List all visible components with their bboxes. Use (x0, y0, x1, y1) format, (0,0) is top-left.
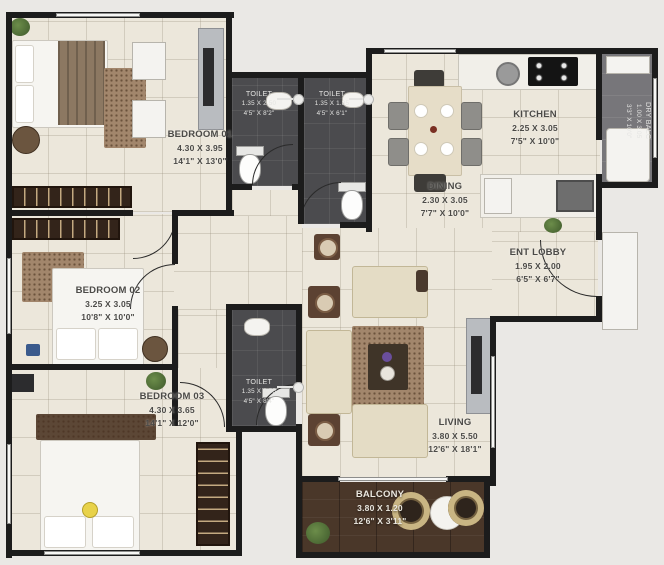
wardrobe (12, 218, 120, 240)
room-name: BALCONY (328, 488, 432, 502)
room-size-m: 2.30 X 3.05 (390, 194, 500, 207)
room-label-bedroom-02: BEDROOM 02 3.25 X 3.05 10'8" X 10'0" (40, 284, 176, 324)
window (44, 551, 140, 555)
flower-vase (382, 352, 392, 362)
wall (446, 476, 490, 482)
side-table (308, 414, 340, 446)
plate (414, 104, 428, 118)
room-size-m: 1.95 X 2.00 (486, 260, 590, 273)
room-size-ft: 14'1" X 13'0" (130, 155, 270, 168)
sofa (306, 330, 352, 414)
pillow (98, 328, 138, 360)
room-label-bedroom-01: BEDROOM 01 4.30 X 3.95 14'1" X 13'0" (130, 128, 270, 168)
sofa-armrest (416, 270, 428, 292)
room-name: BEDROOM 01 (130, 128, 270, 142)
room-size-ft: 3'3" X 10'0" (623, 62, 633, 180)
pillow (92, 516, 134, 548)
bed-lamp (82, 502, 98, 518)
wall (494, 316, 602, 322)
plant (10, 18, 30, 36)
decor-vase (380, 366, 395, 381)
window (384, 49, 456, 53)
wc (341, 190, 363, 220)
wall (172, 210, 234, 216)
wall (6, 210, 133, 216)
wall (172, 216, 178, 264)
dining-chair (388, 138, 409, 166)
room-size-ft: 12'6" X 18'1" (400, 443, 510, 456)
pillow (44, 516, 86, 548)
plate (440, 142, 454, 156)
room-size-ft: 12'6" X 3'11" (328, 515, 432, 528)
plate (440, 104, 454, 118)
side-table (314, 234, 340, 260)
room-name: DRY BALC (643, 62, 654, 180)
wall (296, 304, 302, 390)
tv (203, 48, 214, 106)
window (7, 258, 11, 334)
room-label-kitchen: KITCHEN 2.25 X 3.05 7'5" X 10'0" (470, 108, 600, 148)
room-name: BEDROOM 02 (40, 284, 176, 298)
entrance-landing (602, 232, 638, 330)
room-size-ft: 4'5" X 8'2" (230, 109, 288, 119)
room-label-dining: DINING 2.30 X 3.05 7'7" X 10'0" (390, 180, 500, 220)
cooktop (528, 57, 578, 86)
wardrobe (12, 186, 132, 208)
bedside-stool (26, 344, 40, 356)
washbasin (244, 318, 270, 336)
room-size-m: 1.00 X 3.05 (633, 62, 643, 180)
wardrobe (196, 442, 230, 546)
room-size-ft: 6'5" X 6'7" (486, 273, 590, 286)
wall (484, 480, 490, 558)
rattan-chair (448, 490, 484, 526)
room-name: BEDROOM 03 (104, 390, 240, 404)
room-size-m: 1.35 X 1.85 (304, 99, 360, 109)
room-size-ft: 4'5" X 6'1" (304, 109, 360, 119)
room-name: KITCHEN (470, 108, 600, 122)
room-label-toilet-1: TOILET 1.35 X 2.50 4'5" X 8'2" (230, 88, 288, 119)
wall (296, 476, 340, 482)
wall (6, 364, 178, 370)
wall (236, 430, 242, 556)
room-size-m: 1.35 X 2.50 (230, 99, 288, 109)
tv (471, 336, 482, 394)
pillow (56, 328, 96, 360)
room-size-m: 4.30 X 3.65 (104, 404, 240, 417)
room-label-living: LIVING 3.80 X 5.50 12'6" X 18'1" (400, 416, 510, 456)
centerpiece (430, 126, 437, 133)
room-size-m: 2.25 X 3.05 (470, 122, 600, 135)
bed-throw (58, 41, 105, 125)
decor-bowl (318, 238, 338, 258)
wall (366, 48, 372, 232)
dresser (12, 374, 34, 392)
floor-plan: BEDROOM 01 4.30 X 3.95 14'1" X 13'0" TOI… (0, 0, 664, 565)
ottoman (132, 42, 166, 80)
wall (226, 304, 302, 310)
decor-bowl (315, 293, 335, 313)
side-table (142, 336, 168, 362)
room-name: TOILET (230, 88, 288, 99)
wall (340, 222, 372, 228)
room-label-balcony: BALCONY 3.80 X 1.20 12'6" X 3'11" (328, 488, 432, 528)
kitchen-sink (556, 180, 594, 212)
dining-chair (388, 102, 409, 130)
corridor-floor (232, 190, 302, 216)
room-size-m: 3.25 X 3.05 (40, 298, 176, 311)
room-name: LIVING (400, 416, 510, 430)
corridor-floor (172, 216, 302, 310)
wall (292, 184, 302, 190)
room-name: DINING (390, 180, 500, 194)
wall (598, 182, 658, 188)
wall (296, 480, 302, 558)
wall (296, 424, 302, 482)
room-label-bedroom-03: BEDROOM 03 4.30 X 3.65 14'1" X 12'0" (104, 390, 240, 430)
side-table (308, 286, 340, 318)
side-table (12, 126, 40, 154)
window (56, 13, 140, 17)
room-size-ft: 7'5" X 10'0" (470, 135, 600, 148)
room-size-ft: 10'8" X 10'0" (40, 311, 176, 324)
plant (146, 372, 166, 390)
room-name: TOILET (304, 88, 360, 99)
room-name: ENT LOBBY (486, 246, 590, 260)
sliding-door (338, 477, 448, 481)
plate (414, 142, 428, 156)
wall (596, 174, 602, 240)
window (7, 444, 11, 524)
kitchen-sink (496, 62, 520, 86)
room-size-ft: 14'1" X 12'0" (104, 417, 240, 430)
room-label-ent-lobby: ENT LOBBY 1.95 X 2.00 6'5" X 6'7" (486, 246, 590, 286)
room-label-toilet-2: TOILET 1.35 X 1.85 4'5" X 6'1" (304, 88, 360, 119)
room-size-m: 3.80 X 1.20 (328, 502, 432, 515)
room-name: TOILET (230, 376, 288, 387)
wall (296, 552, 490, 558)
room-size-m: 4.30 X 3.95 (130, 142, 270, 155)
wall (226, 184, 252, 190)
room-size-m: 3.80 X 5.50 (400, 430, 510, 443)
plant (306, 522, 330, 544)
decor-bowl (315, 421, 335, 441)
pillow (15, 85, 34, 123)
room-label-dry-balc: DRY BALC 1.00 X 3.05 3'3" X 10'0" (600, 62, 654, 180)
pillow (15, 45, 34, 83)
plant (544, 218, 562, 233)
room-size-ft: 7'7" X 10'0" (390, 207, 500, 220)
